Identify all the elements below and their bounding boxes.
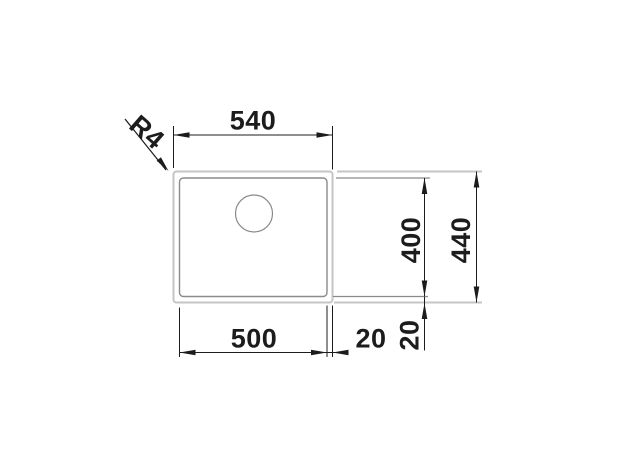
dim-500-label: 500 [231, 324, 278, 354]
drawing-canvas: 540 R4 400 440 20 500 20 [0, 0, 634, 476]
arrow-left-icon [180, 350, 196, 356]
dim-440-label: 440 [446, 217, 476, 264]
dim-20v-label: 20 [395, 319, 425, 350]
arrow-down-icon [422, 281, 428, 297]
arrow-up-icon [422, 303, 428, 319]
arrow-diagonal-icon [157, 157, 169, 171]
arrow-up-icon [422, 178, 428, 194]
arrow-up-icon [474, 172, 480, 188]
arrow-right-icon [311, 350, 327, 356]
arrow-left-icon [174, 132, 190, 138]
dim-20h-label: 20 [355, 324, 386, 354]
arrow-right-icon [317, 132, 333, 138]
radius-label: R4 [124, 109, 170, 155]
arrow-left-icon [333, 350, 349, 356]
sink-bowl-outline [180, 178, 328, 297]
dim-540-label: 540 [230, 106, 277, 136]
dim-400-label: 400 [396, 217, 426, 264]
sink-dimension-drawing: 540 R4 400 440 20 500 20 [0, 0, 634, 476]
sink-rim-outline [174, 172, 333, 303]
drain-hole [236, 195, 273, 232]
arrow-down-icon [474, 287, 480, 303]
